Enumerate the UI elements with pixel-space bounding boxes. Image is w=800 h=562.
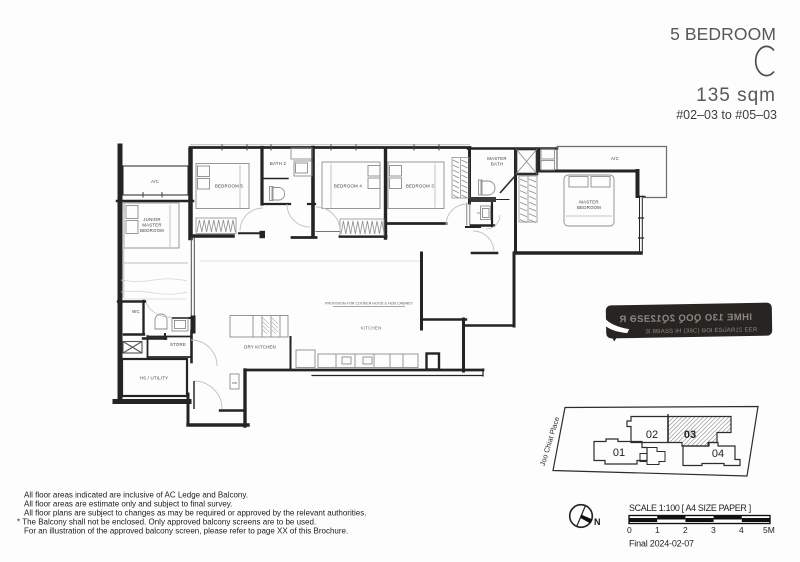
svg-text:1: 1: [655, 525, 660, 535]
svg-text:BEDROOM 3: BEDROOM 3: [406, 184, 435, 189]
svg-text:BEDROOM 4: BEDROOM 4: [334, 184, 363, 189]
svg-text:BATH 2: BATH 2: [270, 161, 287, 166]
svg-text:02: 02: [646, 429, 658, 441]
svg-text:* The Balcony shall not be enc: * The Balcony shall not be enclosed. Onl…: [17, 518, 316, 527]
svg-text:03: 03: [684, 429, 696, 441]
svg-text:JUNIOR: JUNIOR: [143, 217, 161, 222]
svg-text:KITCHEN: KITCHEN: [361, 326, 382, 331]
svg-text:For an illustration of the app: For an illustration of the approved balc…: [24, 527, 348, 536]
svg-text:4: 4: [739, 525, 744, 535]
svg-text:N: N: [594, 517, 601, 527]
svg-text:BEDROOM: BEDROOM: [140, 228, 164, 233]
svg-text:2: 2: [683, 525, 688, 535]
svg-text:0: 0: [627, 525, 632, 535]
svg-text:5M: 5M: [763, 525, 775, 535]
svg-text:IHME 13O QOQ 2Q12ƎƧƏ R: IHME 13O QOQ 2Q12ƎƧƏ R: [619, 312, 752, 325]
svg-text:5 BEDROOM: 5 BEDROOM: [670, 24, 776, 44]
svg-text:3: 3: [711, 525, 716, 535]
svg-text:#02–03 to #05–03: #02–03 to #05–03: [676, 108, 777, 122]
svg-text:WC: WC: [132, 309, 140, 314]
svg-text:Final 2024-02-07: Final 2024-02-07: [629, 539, 694, 549]
svg-text:BEDROOM 5: BEDROOM 5: [215, 184, 244, 189]
svg-text:All floor areas are estimate o: All floor areas are estimate only and su…: [24, 500, 232, 509]
svg-text:Joo Chiat Place: Joo Chiat Place: [538, 416, 562, 468]
svg-text:04: 04: [712, 448, 724, 460]
svg-text:STORE: STORE: [170, 342, 186, 347]
svg-text:MASTER: MASTER: [579, 200, 599, 205]
svg-text:All floor plans are subject to: All floor plans are subject to changes a…: [24, 509, 366, 518]
svg-text:DRY KITCHEN: DRY KITCHEN: [244, 345, 276, 350]
svg-text:BATH: BATH: [491, 162, 503, 167]
svg-text:A/C: A/C: [151, 179, 159, 184]
svg-text:BEDROOM: BEDROOM: [577, 205, 601, 210]
svg-text:HS / UTILITY: HS / UTILITY: [140, 376, 169, 381]
svg-text:01: 01: [613, 447, 625, 459]
svg-text:PROVISION FOR COOKER HOOD & HO: PROVISION FOR COOKER HOOD & HOB CABINET: [325, 302, 414, 306]
svg-text:All floor areas indicated are: All floor areas indicated are inclusive …: [24, 491, 248, 500]
svg-text:DB: DB: [232, 381, 237, 385]
svg-text:135 sqm: 135 sqm: [696, 85, 776, 106]
svg-text:SCALE 1:100 [ A4 SIZE PAPER ]: SCALE 1:100 [ A4 SIZE PAPER ]: [629, 503, 751, 513]
svg-text:A/C: A/C: [611, 156, 619, 161]
svg-text:MASTER: MASTER: [142, 223, 162, 228]
svg-text:MASTER: MASTER: [487, 156, 507, 161]
